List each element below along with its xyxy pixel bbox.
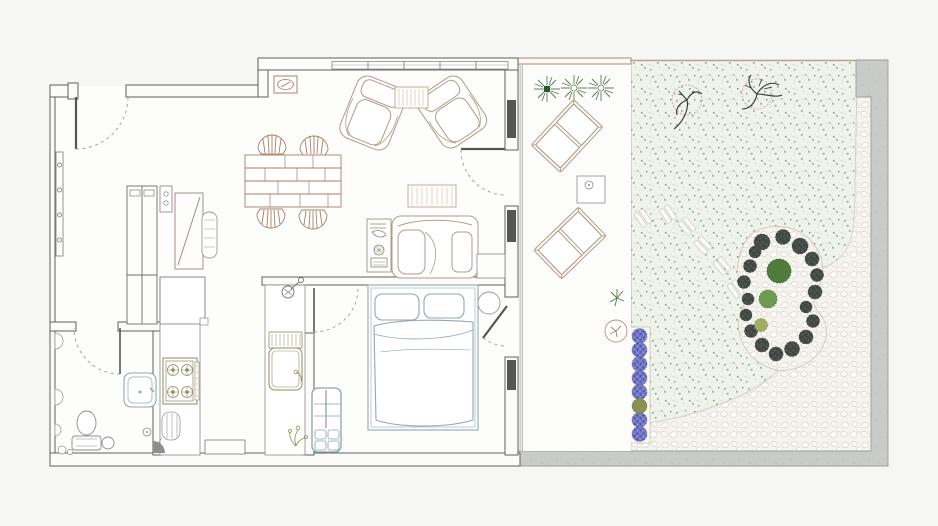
plant-dark-center	[544, 86, 550, 92]
terrace-top-wall	[518, 58, 631, 64]
sofa	[392, 216, 478, 278]
window-bedroom	[507, 360, 516, 390]
duvet	[374, 320, 473, 426]
washbasin	[124, 373, 156, 407]
dresser	[312, 388, 341, 452]
hook-box	[160, 186, 172, 212]
gas-stove	[163, 358, 199, 404]
terrace-left-wall	[520, 64, 523, 451]
wall-top-b	[126, 85, 268, 97]
upper-cabinet	[160, 277, 205, 324]
toilet-cistern	[72, 436, 101, 450]
striped-rug-2	[408, 185, 456, 207]
terrace-round-planter	[605, 320, 627, 342]
wall-vent	[274, 76, 297, 93]
pillow	[375, 294, 419, 320]
side-table	[367, 219, 391, 272]
striped-rug-1	[395, 87, 428, 108]
floor-plan-canvas	[0, 0, 938, 526]
terrace-side-table	[577, 176, 605, 203]
double-bed	[368, 285, 478, 430]
storage-jar	[102, 437, 114, 449]
bedside-stool	[478, 292, 500, 314]
olive-plant	[632, 399, 647, 414]
corner-cabinet	[477, 254, 505, 278]
drainboard	[269, 332, 302, 348]
apartment	[50, 58, 520, 466]
lavender-border	[629, 327, 650, 443]
wall-bathroom-top-a	[50, 322, 76, 331]
sink-unit	[269, 332, 302, 390]
floor-niche	[205, 440, 245, 454]
terrace	[518, 58, 631, 451]
garden	[629, 61, 873, 452]
floor-plan-screenshot	[0, 0, 938, 526]
window-living-2	[507, 210, 516, 242]
pillow	[424, 294, 464, 318]
entry-door-jamb	[68, 83, 78, 99]
hanging-clothes-roll	[202, 212, 217, 258]
window-living-1	[507, 100, 516, 138]
wall-left	[50, 85, 55, 465]
